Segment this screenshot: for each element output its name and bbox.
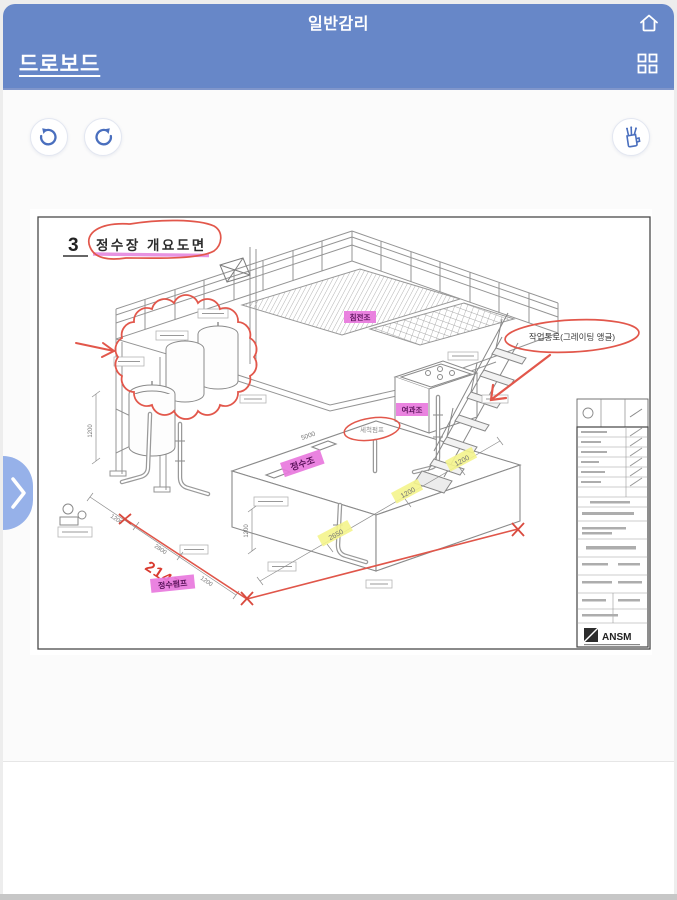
passage-note-text: 작업통로(그레이팅 앵글) <box>529 332 615 342</box>
sheet-number: 3 <box>68 235 79 256</box>
chevron-right-icon <box>7 473 29 513</box>
pen-tools-button[interactable] <box>612 118 650 156</box>
undo-arrow-icon <box>38 126 60 148</box>
grid-menu-icon <box>637 53 658 74</box>
title-block: ANSM <box>577 399 648 647</box>
app-screen: 일반감리 드로보드 <box>3 4 674 894</box>
drawboard-link[interactable]: 드로보드 <box>19 48 100 78</box>
lower-panel <box>3 761 674 894</box>
screen-bottom-edge <box>0 894 677 900</box>
logo-text: ANSM <box>602 632 631 643</box>
label-text: 침전조 <box>350 312 371 322</box>
redo-arrow-icon <box>92 126 114 148</box>
dim-value: 1200 <box>88 424 94 438</box>
page-title: 일반감리 <box>308 10 369 34</box>
blueprint-drawing: 1200 1200 2650 5000 1200 1200 2800 1200 … <box>30 209 652 655</box>
app-header: 일반감리 드로보드 <box>3 4 674 90</box>
dim-value: 1200 <box>244 524 250 538</box>
drawer-toggle[interactable] <box>3 456 33 530</box>
sheet-title: 정수장 개요도면 <box>96 237 207 253</box>
home-icon <box>638 12 660 34</box>
pen-holder-icon <box>619 125 643 149</box>
undo-button[interactable] <box>30 118 68 156</box>
redo-button[interactable] <box>84 118 122 156</box>
home-button[interactable] <box>637 11 661 35</box>
label-text: 여과조 <box>402 405 423 415</box>
wash-pump-text: 세척펌프 <box>360 425 384 434</box>
header-title-row: 일반감리 <box>3 4 674 40</box>
drawing-board[interactable]: 1200 1200 2650 5000 1200 1200 2800 1200 … <box>30 209 652 655</box>
grid-menu-button[interactable] <box>636 52 658 74</box>
header-nav-row: 드로보드 <box>3 40 674 86</box>
